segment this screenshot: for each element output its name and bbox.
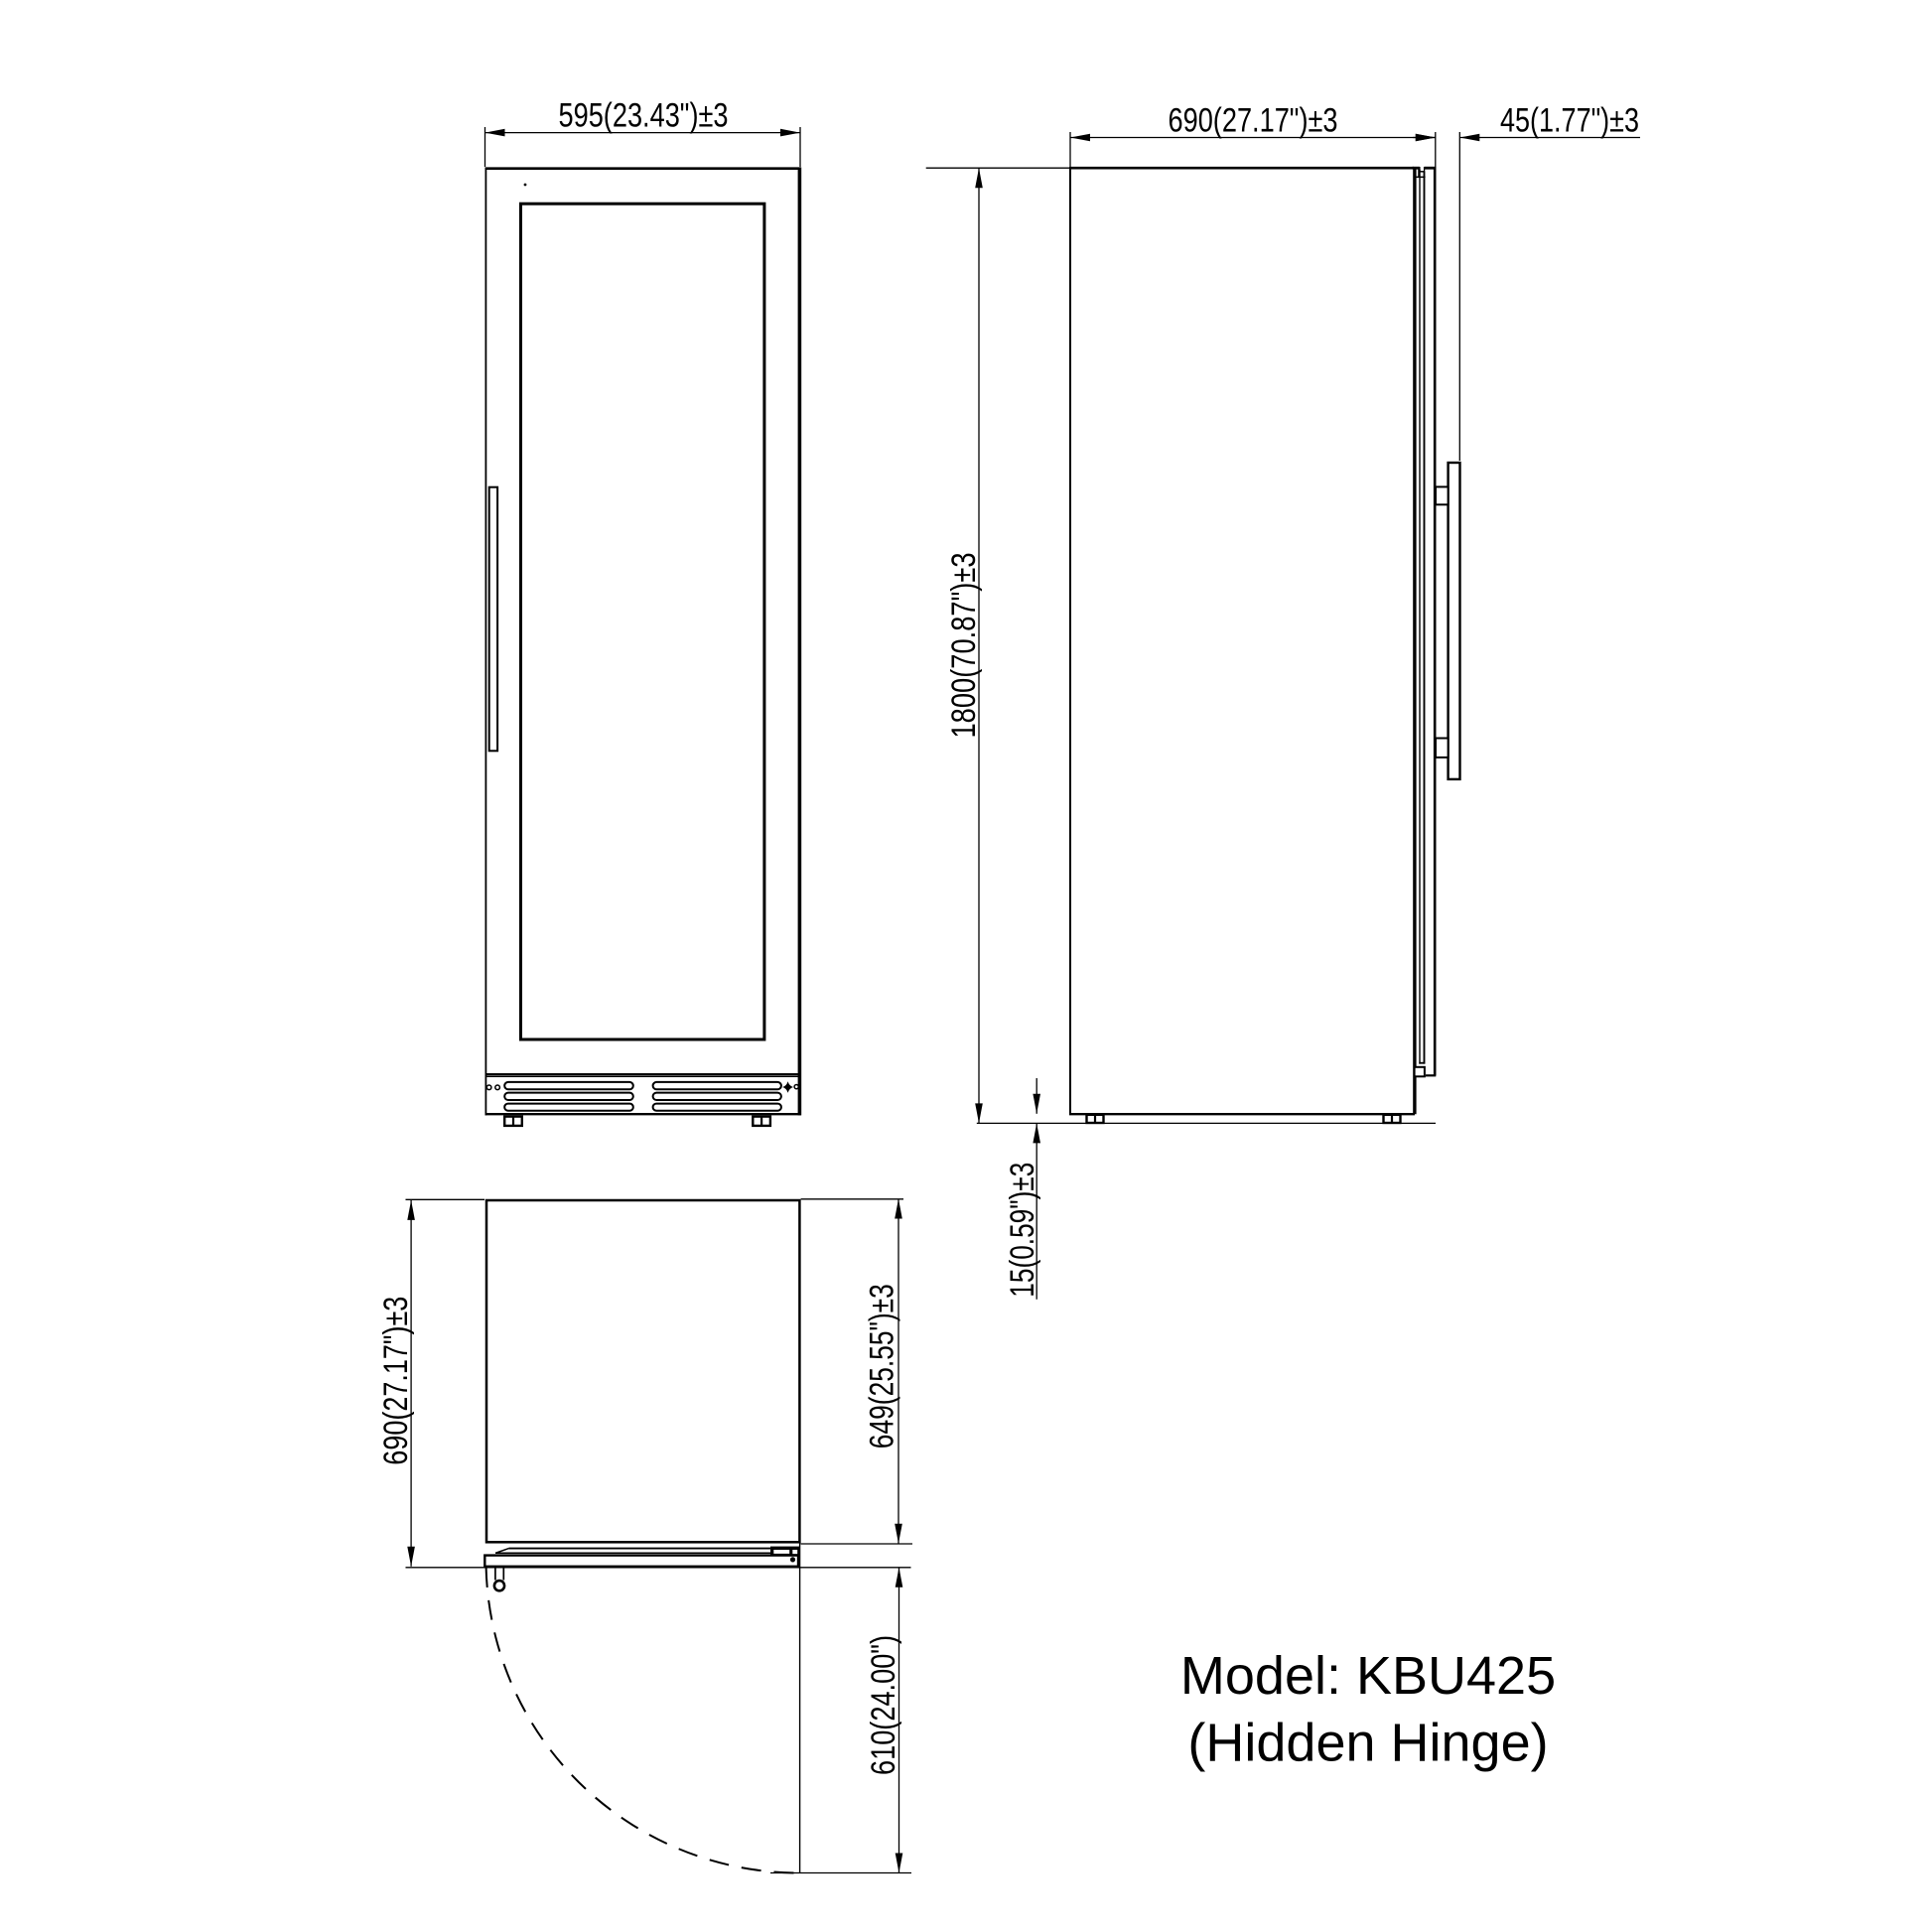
svg-text:649(25.55")±3: 649(25.55")±3 bbox=[864, 1284, 901, 1449]
svg-text:595(23.43")±3: 595(23.43")±3 bbox=[559, 97, 729, 135]
svg-text:45(1.77")±3: 45(1.77")±3 bbox=[1500, 102, 1639, 140]
svg-text:(Hidden Hinge): (Hidden Hinge) bbox=[1187, 1714, 1548, 1773]
svg-text:690(27.17")±3: 690(27.17")±3 bbox=[1169, 102, 1338, 140]
svg-text:15(0.59")±3: 15(0.59")±3 bbox=[1004, 1163, 1041, 1298]
svg-text:690(27.17")±3: 690(27.17")±3 bbox=[377, 1297, 415, 1465]
svg-text:Model: KBU425: Model: KBU425 bbox=[1180, 1646, 1556, 1706]
svg-text:1800(70.87")±3: 1800(70.87")±3 bbox=[945, 553, 983, 739]
svg-text:610(24.00"): 610(24.00") bbox=[865, 1635, 902, 1775]
